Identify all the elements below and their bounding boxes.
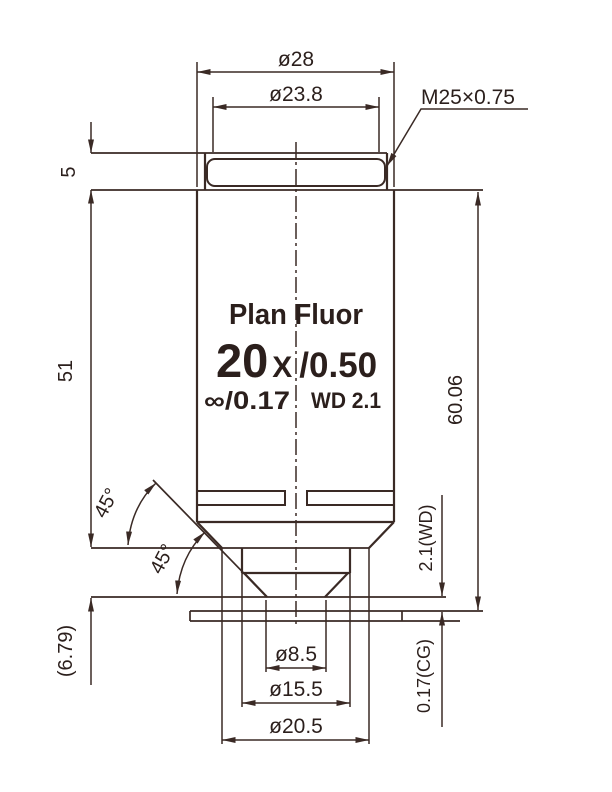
label-taper-flat-diameter: ø20.5 xyxy=(269,715,323,738)
inscription-working-distance: WD 2.1 xyxy=(311,388,381,413)
label-thread-spec: M25×0.75 xyxy=(421,86,515,109)
drawing-canvas: ø28 ø23.8 M25×0.75 5 51 (6.79) 45° 45° 6… xyxy=(0,0,612,792)
label-band-right xyxy=(307,491,394,505)
label-working-distance: 2.1(WD) xyxy=(416,505,436,572)
inscription-magnification: 20 xyxy=(216,334,268,387)
label-band-left xyxy=(197,491,285,505)
inscription-mag-suffix: X xyxy=(272,351,292,384)
thread-leader-line xyxy=(387,109,528,166)
label-tip-protrusion: (6.79) xyxy=(55,625,77,677)
label-shoulder-angle: 45° xyxy=(90,485,124,522)
inscription-series: Plan Fluor xyxy=(229,299,363,331)
barrel-inscription: Plan Fluor 20X/0.50 ∞/0.17 WD 2.1 xyxy=(204,299,381,415)
label-front-aperture-diameter: ø8.5 xyxy=(275,643,317,666)
extension-lines-top xyxy=(197,62,394,187)
inscription-tube-length: ∞/0.17 xyxy=(204,387,290,415)
label-tip-angle: 45° xyxy=(146,541,180,578)
objective-dimension-drawing: ø28 ø23.8 M25×0.75 5 51 (6.79) 45° 45° 6… xyxy=(0,0,612,792)
angle-arc-upper xyxy=(128,483,156,545)
label-thread-pilot-diameter: ø23.8 xyxy=(269,83,323,106)
angle-arc-lower xyxy=(177,532,205,594)
label-cover-glass: 0.17(CG) xyxy=(414,639,434,713)
inscription-numerical-aperture: /0.50 xyxy=(299,346,377,385)
label-parfocal-length: 60.06 xyxy=(445,375,467,425)
label-barrel-length: 51 xyxy=(55,360,77,382)
label-nose-diameter: ø15.5 xyxy=(269,678,323,701)
taper-reference-line xyxy=(153,480,267,597)
label-outer-diameter: ø28 xyxy=(278,48,314,71)
label-thread-length: 5 xyxy=(58,166,80,177)
